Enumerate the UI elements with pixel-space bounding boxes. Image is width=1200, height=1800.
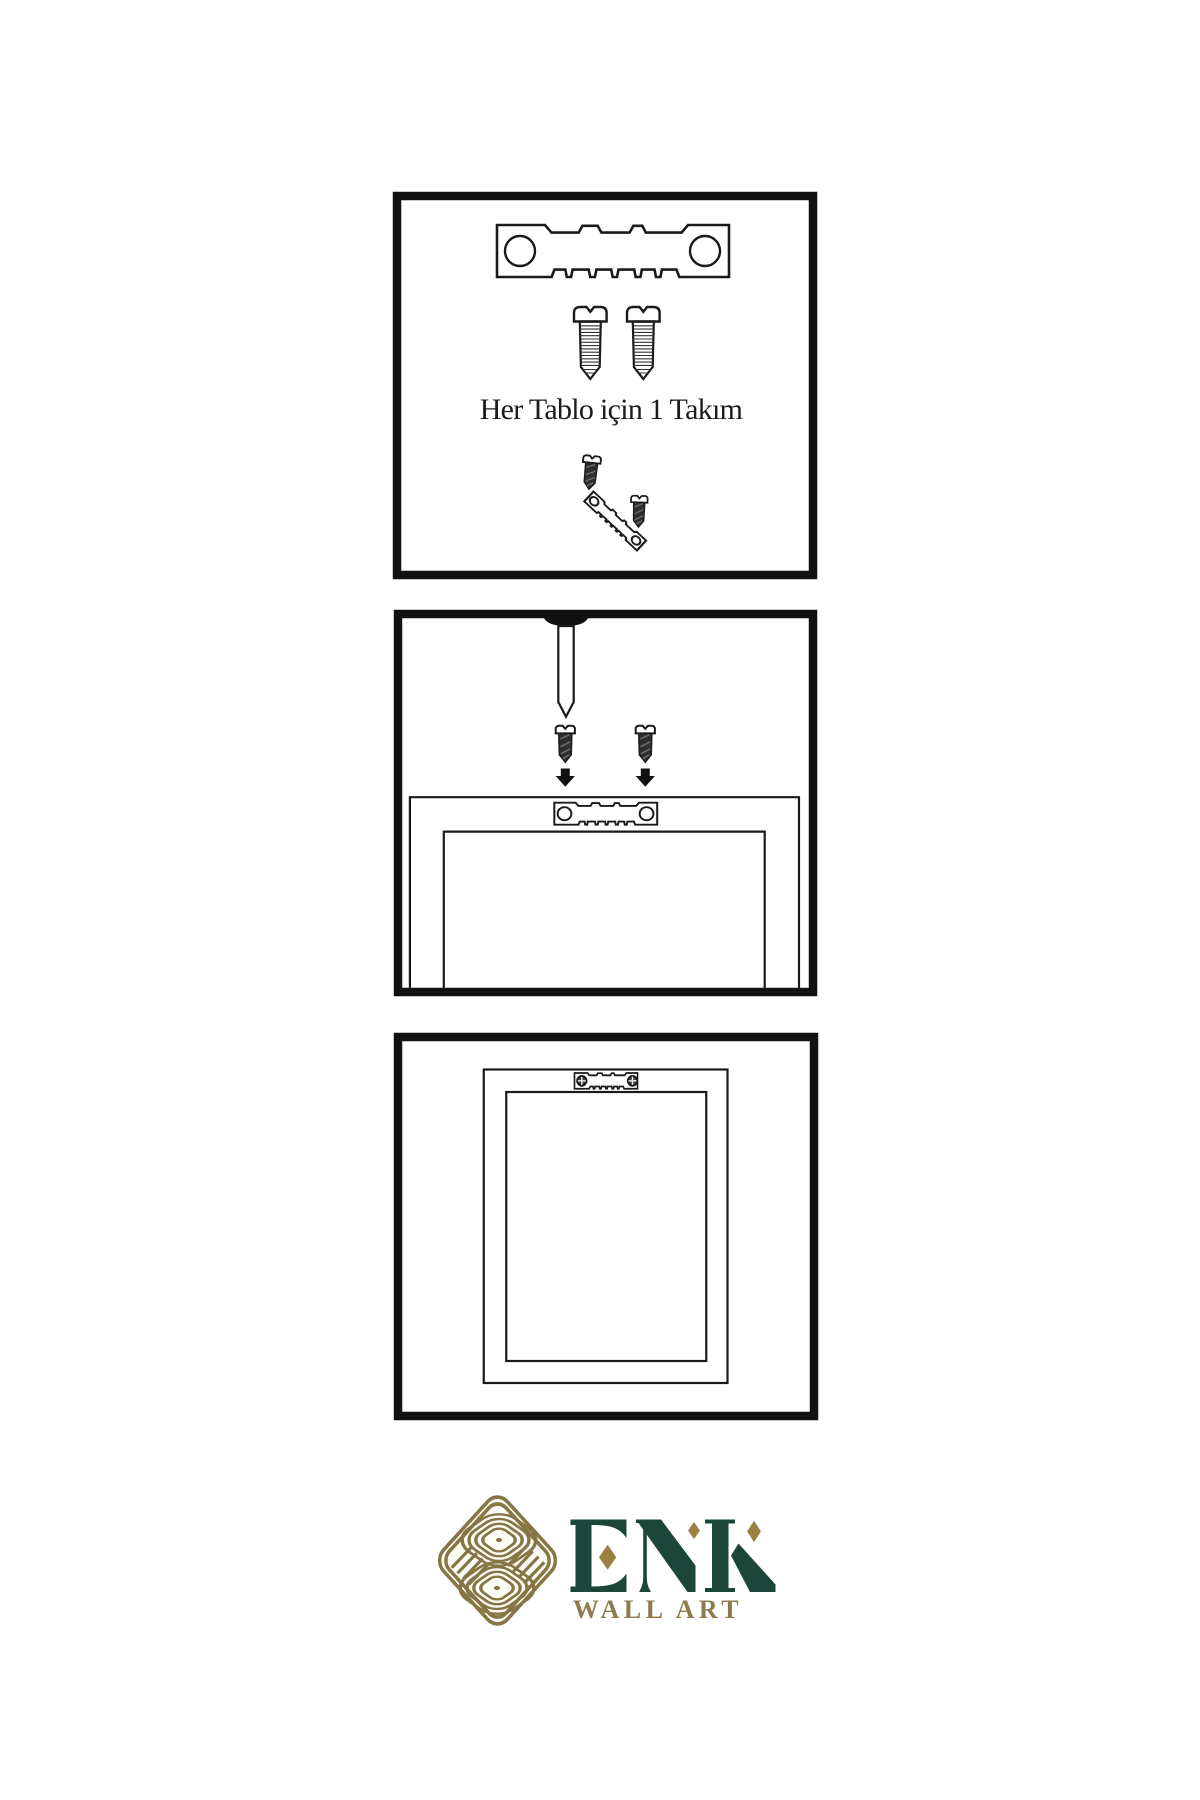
svg-text:WALL ART: WALL ART: [573, 1595, 743, 1624]
svg-text:Her Tablo için 1 Takım: Her Tablo için 1 Takım: [480, 393, 743, 426]
